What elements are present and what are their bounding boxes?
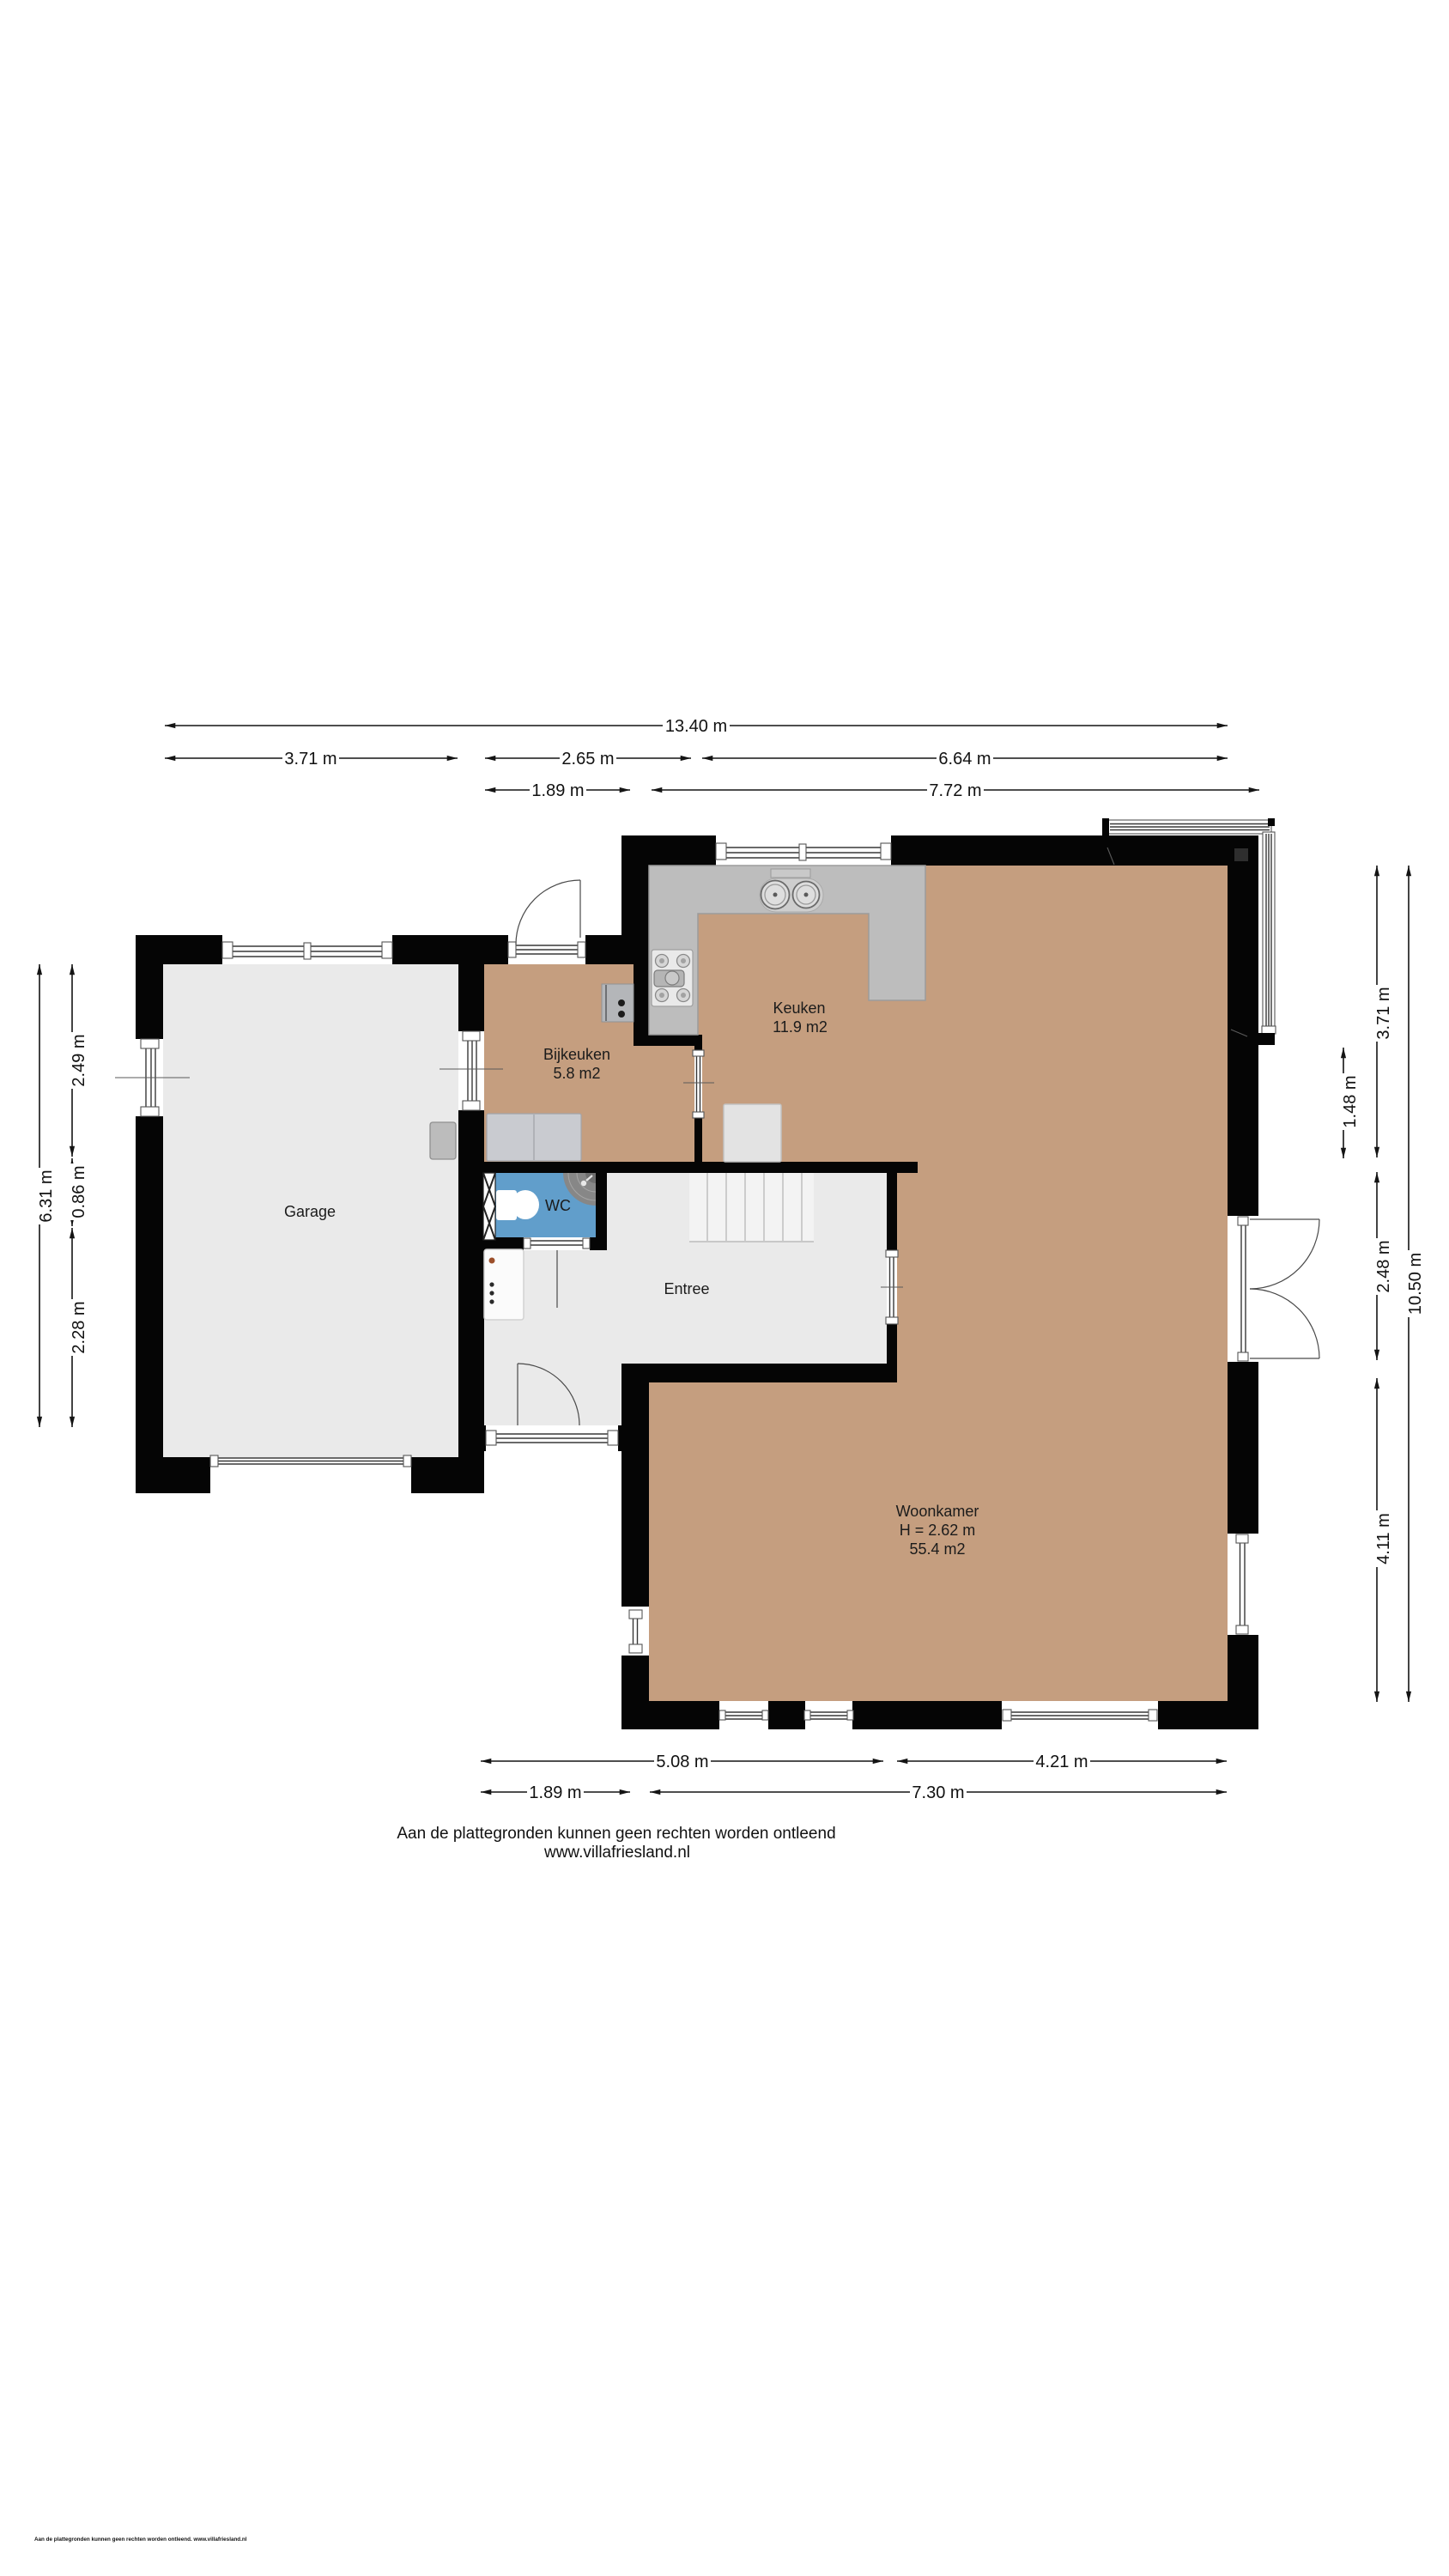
svg-text:Keuken: Keuken xyxy=(773,999,825,1017)
svg-text:1.48 m: 1.48 m xyxy=(1341,1075,1360,1127)
svg-text:WC: WC xyxy=(545,1197,571,1214)
svg-text:5.8 m2: 5.8 m2 xyxy=(553,1065,600,1082)
svg-text:H = 2.62 m: H = 2.62 m xyxy=(900,1522,976,1539)
svg-text:5.08 m: 5.08 m xyxy=(656,1753,708,1771)
svg-text:2.28 m: 2.28 m xyxy=(70,1301,88,1353)
svg-text:7.72 m: 7.72 m xyxy=(929,781,981,800)
svg-text:55.4 m2: 55.4 m2 xyxy=(909,1540,965,1558)
svg-text:6.64 m: 6.64 m xyxy=(938,750,991,769)
svg-text:10.50 m: 10.50 m xyxy=(1406,1253,1425,1315)
svg-text:2.65 m: 2.65 m xyxy=(561,750,614,769)
svg-text:0.86 m: 0.86 m xyxy=(70,1165,88,1218)
svg-text:7.30 m: 7.30 m xyxy=(912,1783,964,1802)
svg-text:Entree: Entree xyxy=(664,1280,709,1297)
svg-text:2.48 m: 2.48 m xyxy=(1374,1240,1393,1292)
svg-text:Garage: Garage xyxy=(284,1203,336,1220)
svg-text:4.21 m: 4.21 m xyxy=(1035,1753,1088,1771)
svg-text:6.31 m: 6.31 m xyxy=(37,1170,56,1222)
svg-text:2.49 m: 2.49 m xyxy=(70,1034,88,1086)
svg-text:Aan de plattegronden kunnen ge: Aan de plattegronden kunnen geen rechten… xyxy=(397,1825,835,1843)
svg-text:3.71 m: 3.71 m xyxy=(1374,987,1393,1039)
svg-text:Woonkamer: Woonkamer xyxy=(896,1503,979,1520)
svg-text:www.villafriesland.nl: www.villafriesland.nl xyxy=(543,1844,690,1862)
svg-text:1.89 m: 1.89 m xyxy=(529,1783,581,1802)
svg-text:3.71 m: 3.71 m xyxy=(284,750,336,769)
svg-text:1.89 m: 1.89 m xyxy=(531,781,584,800)
svg-text:13.40 m: 13.40 m xyxy=(665,717,727,736)
svg-text:Aan de plattegronden kunnen ge: Aan de plattegronden kunnen geen rechten… xyxy=(34,2537,247,2543)
svg-text:Bijkeuken: Bijkeuken xyxy=(543,1046,610,1063)
svg-text:4.11 m: 4.11 m xyxy=(1374,1513,1393,1564)
svg-text:11.9 m2: 11.9 m2 xyxy=(773,1018,828,1036)
